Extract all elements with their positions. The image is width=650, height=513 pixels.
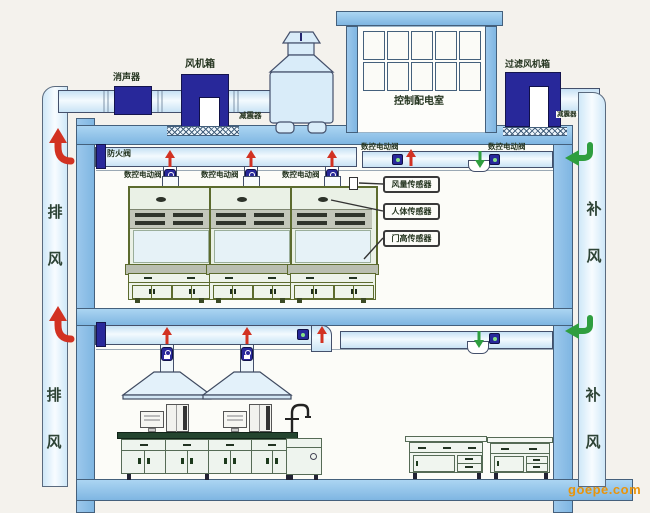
hood-grille: [130, 209, 210, 229]
bench-countertop: [117, 432, 298, 439]
human-sensor-dot: [318, 197, 328, 202]
control-room-window: [459, 31, 481, 60]
control-room-window: [363, 62, 385, 91]
door-height-sensor-callout: 门高传感器: [383, 230, 440, 247]
bench-leg: [477, 473, 481, 479]
sink-leg: [289, 475, 293, 480]
cnc-valve-label-4: 数控电动阀: [361, 143, 399, 151]
upper-exhaust-duct: [95, 147, 357, 167]
bench-leg: [494, 473, 498, 479]
human-sensor-callout: 人体传感器: [383, 203, 440, 220]
hood-body: [209, 186, 297, 269]
storage-bench: [409, 442, 483, 473]
fume-hood: [128, 176, 212, 303]
cnc-valve-actuator: [297, 329, 309, 340]
shock-absorber-right-label: 减震器: [556, 111, 578, 118]
fan-box-vibration-base: [167, 126, 239, 136]
computer-tower: [166, 404, 189, 432]
cnc-valve-actuator: [241, 347, 253, 361]
hood-sash-window: [295, 230, 371, 263]
control-room-window: [411, 62, 433, 91]
cnc-valve-actuator: [161, 347, 173, 361]
fire-damper-lower: [96, 322, 106, 347]
supply-valve-actuator: [392, 154, 403, 165]
exhaust-shaft-label-upper: 排风: [46, 189, 64, 283]
storage-bench: [490, 443, 550, 473]
lower-exhaust-duct: [95, 325, 317, 345]
bench-leg: [544, 473, 548, 479]
human-sensor-dot: [237, 197, 247, 202]
ventilation-system-diagram: 消声器 风机箱 减震器 控制配电室 过滤风机箱 减震器 防火阀 数控电动阀 数控…: [0, 0, 650, 513]
bench-leg: [413, 473, 417, 479]
hood-sash-window: [214, 230, 290, 263]
bench-section: [122, 440, 166, 474]
fume-hood: [209, 176, 293, 303]
supply-valve-actuator: [489, 154, 500, 165]
sink-leg: [314, 475, 318, 480]
upper-supply-duct: [362, 151, 553, 168]
airflow-sensor-box: [349, 177, 358, 190]
lower-supply-duct: [340, 331, 553, 349]
hood-base-cabinet: [209, 273, 295, 300]
computer-monitor: [223, 411, 247, 428]
human-sensor-dot: [156, 197, 166, 202]
bench-leg: [127, 474, 131, 480]
filter-fan-box-opening: [529, 86, 549, 127]
control-room-window: [459, 62, 481, 91]
bench-section: [165, 440, 209, 474]
fan-box-label: 风机箱: [185, 59, 215, 70]
exhaust-stack-tower: [270, 32, 333, 133]
cnc-valve-label-5: 数控电动阀: [488, 143, 526, 151]
monitor-stand: [231, 428, 239, 432]
hood-grille: [211, 209, 291, 229]
supply-outlet-elbow: [467, 341, 489, 354]
shock-absorber-left-label: 减震器: [239, 112, 262, 120]
control-room-right-column: [485, 26, 497, 133]
bench-section: [208, 440, 252, 474]
control-room-roof: [336, 11, 503, 26]
supply-shaft-label-upper: 补风: [585, 186, 603, 280]
control-room-window: [387, 62, 409, 91]
supply-outlet-elbow: [468, 160, 490, 172]
control-room-window: [363, 31, 385, 60]
airflow-sensor-callout: 风量传感器: [383, 176, 440, 193]
watermark: goepe.com: [568, 482, 641, 497]
control-room-window: [435, 62, 457, 91]
control-room-label: 控制配电室: [394, 96, 444, 107]
hood-grille: [292, 209, 372, 229]
computer-tower: [249, 404, 272, 432]
fume-hood: [290, 176, 374, 303]
filter-fan-vibration-base: [503, 127, 567, 136]
control-room-left-column: [346, 26, 358, 133]
control-room-window: [387, 31, 409, 60]
control-room-window: [435, 31, 457, 60]
hood-sash-window: [133, 230, 209, 263]
control-room-window: [411, 31, 433, 60]
sink-cabinet: [286, 438, 322, 475]
fire-damper-label: 防火阀: [107, 147, 118, 160]
silencer-label: 消声器: [113, 73, 140, 83]
hood-body: [290, 186, 378, 269]
lower-exhaust-end-elbow: [311, 325, 332, 352]
ground-slab: [76, 479, 633, 501]
bench-cabinet: [121, 439, 294, 474]
computer-monitor: [140, 411, 164, 428]
fire-damper-upper: [96, 144, 106, 169]
supply-shaft-label-lower: 补风: [584, 372, 602, 466]
hood-base-cabinet: [290, 273, 376, 300]
hood-base-cabinet: [128, 273, 214, 300]
hood-body: [128, 186, 216, 269]
exhaust-shaft-label-lower: 排风: [45, 372, 63, 466]
bench-leg: [205, 474, 209, 480]
filter-fan-box-label: 过滤风机箱: [505, 60, 550, 70]
middle-floor-slab: [76, 308, 573, 326]
silencer-box: [114, 86, 152, 115]
supply-valve-actuator: [489, 333, 500, 344]
monitor-stand: [148, 428, 156, 432]
roof-exhaust-duct: [58, 90, 274, 113]
